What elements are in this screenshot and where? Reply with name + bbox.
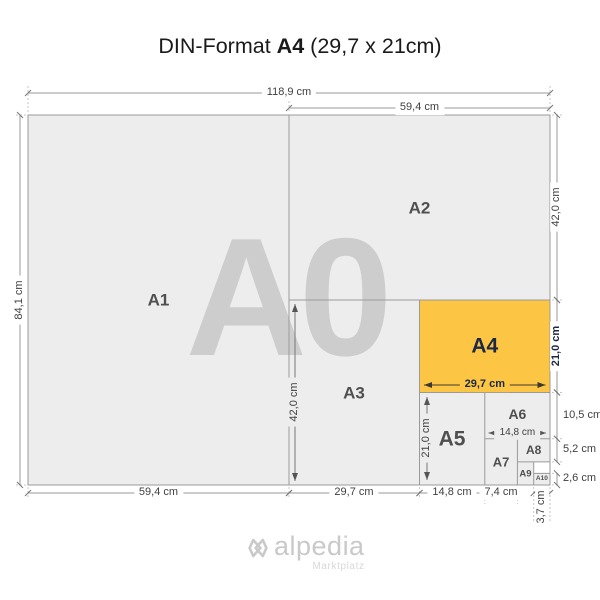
- dim-width-a2-top: 59,4 cm: [395, 101, 444, 115]
- dim-height-a4: 21,0 cm: [550, 321, 564, 371]
- dim-height-a6: 10,5 cm: [560, 409, 600, 423]
- din-format-infographic: DIN-Format A4 (29,7 x 21cm) A0: [0, 0, 600, 600]
- label-a2: A2: [409, 199, 431, 216]
- label-a7: A7: [493, 456, 510, 469]
- label-a5: A5: [439, 428, 466, 449]
- dim-width-a0: 118,9 cm: [262, 86, 316, 100]
- dim-inner-height-a3: 42,0 cm: [288, 377, 302, 426]
- alpedia-logo-icon: [245, 535, 271, 561]
- alpedia-logo: alpedia Marktplatz: [245, 533, 365, 572]
- paper-outlines: [28, 115, 550, 485]
- logo-name: alpedia: [274, 533, 365, 560]
- logo-tagline: Marktplatz: [312, 561, 364, 572]
- dim-inner-width-a4: 29,7 cm: [460, 378, 510, 392]
- dim-height-a8: 5,2 cm: [560, 443, 599, 457]
- label-a3: A3: [343, 384, 365, 401]
- label-a1: A1: [148, 292, 170, 309]
- dim-inner-height-a5: 21,0 cm: [420, 413, 434, 462]
- dim-width-a1: 59,4 cm: [134, 486, 183, 500]
- dim-height-a2: 42,0 cm: [550, 182, 564, 231]
- logo-text: alpedia Marktplatz: [274, 533, 365, 572]
- label-a10: A10: [536, 476, 548, 483]
- dim-height-a0: 84,1 cm: [13, 275, 27, 324]
- label-a8: A8: [526, 444, 541, 456]
- label-a9: A9: [519, 469, 531, 479]
- dim-width-a7: 7,4 cm: [479, 486, 522, 500]
- dim-width-a5: 14,8 cm: [427, 486, 476, 500]
- dim-inner-width-a6: 14,8 cm: [495, 427, 541, 440]
- dim-width-a3: 29,7 cm: [329, 486, 378, 500]
- label-a4: A4: [471, 336, 498, 357]
- dim-height-a10: 2,6 cm: [560, 472, 599, 486]
- label-a6: A6: [508, 407, 526, 421]
- dim-width-a9: 3,7 cm: [535, 485, 549, 528]
